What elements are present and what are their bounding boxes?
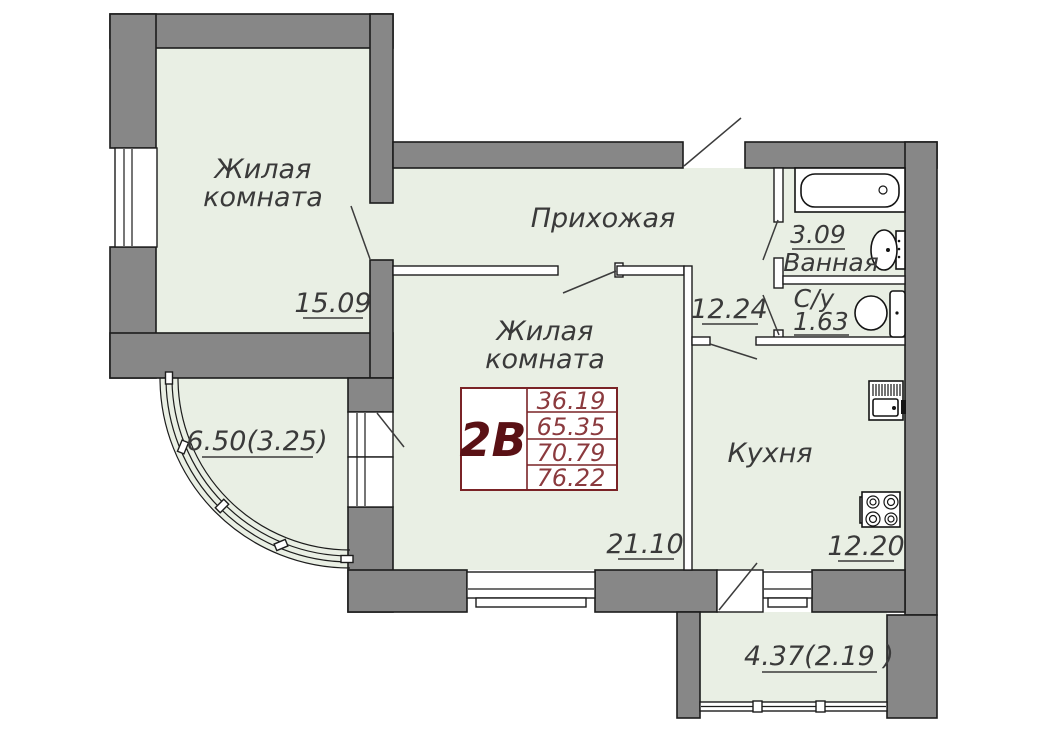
door-swing-entry: [684, 118, 741, 166]
window-room2: [467, 572, 595, 598]
window-room1: [115, 148, 157, 247]
hall-label: Прихожая: [531, 203, 676, 234]
unit-id: 2В: [459, 413, 526, 467]
room2-label-line2: комната: [485, 344, 605, 375]
window-kitchen: [763, 572, 812, 598]
room1-label-line1: Жилая: [213, 154, 312, 185]
kitchen-sink: [869, 381, 906, 420]
kitchen-area: 12.20: [827, 531, 904, 562]
room2-label-line1: Жилая: [495, 316, 594, 347]
floor-room1-doorway: [370, 203, 393, 260]
hall-area: 12.24: [690, 294, 767, 325]
bath-label: Ванная: [783, 248, 879, 277]
unit-value-2: 65.35: [537, 413, 606, 441]
unit-value-4: 76.22: [537, 464, 606, 492]
floor-plan-page: Жилая комната 15.09 Прихожая 12.24 3.09 …: [0, 0, 1054, 746]
door-room2-balcony: [348, 412, 393, 457]
balcony-bottom-area: 4.37(2.19 ): [744, 641, 894, 672]
balcony-left-area: 6.50(3.25): [186, 426, 327, 457]
stove: [860, 492, 900, 527]
unit-value-3: 70.79: [537, 439, 606, 467]
wc-area: 1.63: [793, 307, 849, 336]
kitchen-label: Кухня: [727, 438, 812, 469]
balcony-bottom-glazing: [700, 701, 887, 712]
room1-label-line2: комната: [203, 182, 323, 213]
bathtub: [795, 168, 905, 212]
unit-value-1: 36.19: [537, 387, 606, 415]
bath-area: 3.09: [790, 220, 846, 249]
unit-info-box: 2В 36.19 65.35 70.79 76.22: [459, 387, 617, 492]
floor-balcony-left: [160, 378, 350, 568]
room2-area: 21.10: [606, 529, 683, 560]
floor-plan-drawing: Жилая комната 15.09 Прихожая 12.24 3.09 …: [0, 0, 1054, 746]
room1-area: 15.09: [294, 288, 371, 319]
door-kitchen-balcony: [717, 570, 763, 612]
window-room2-balcony: [348, 457, 393, 507]
